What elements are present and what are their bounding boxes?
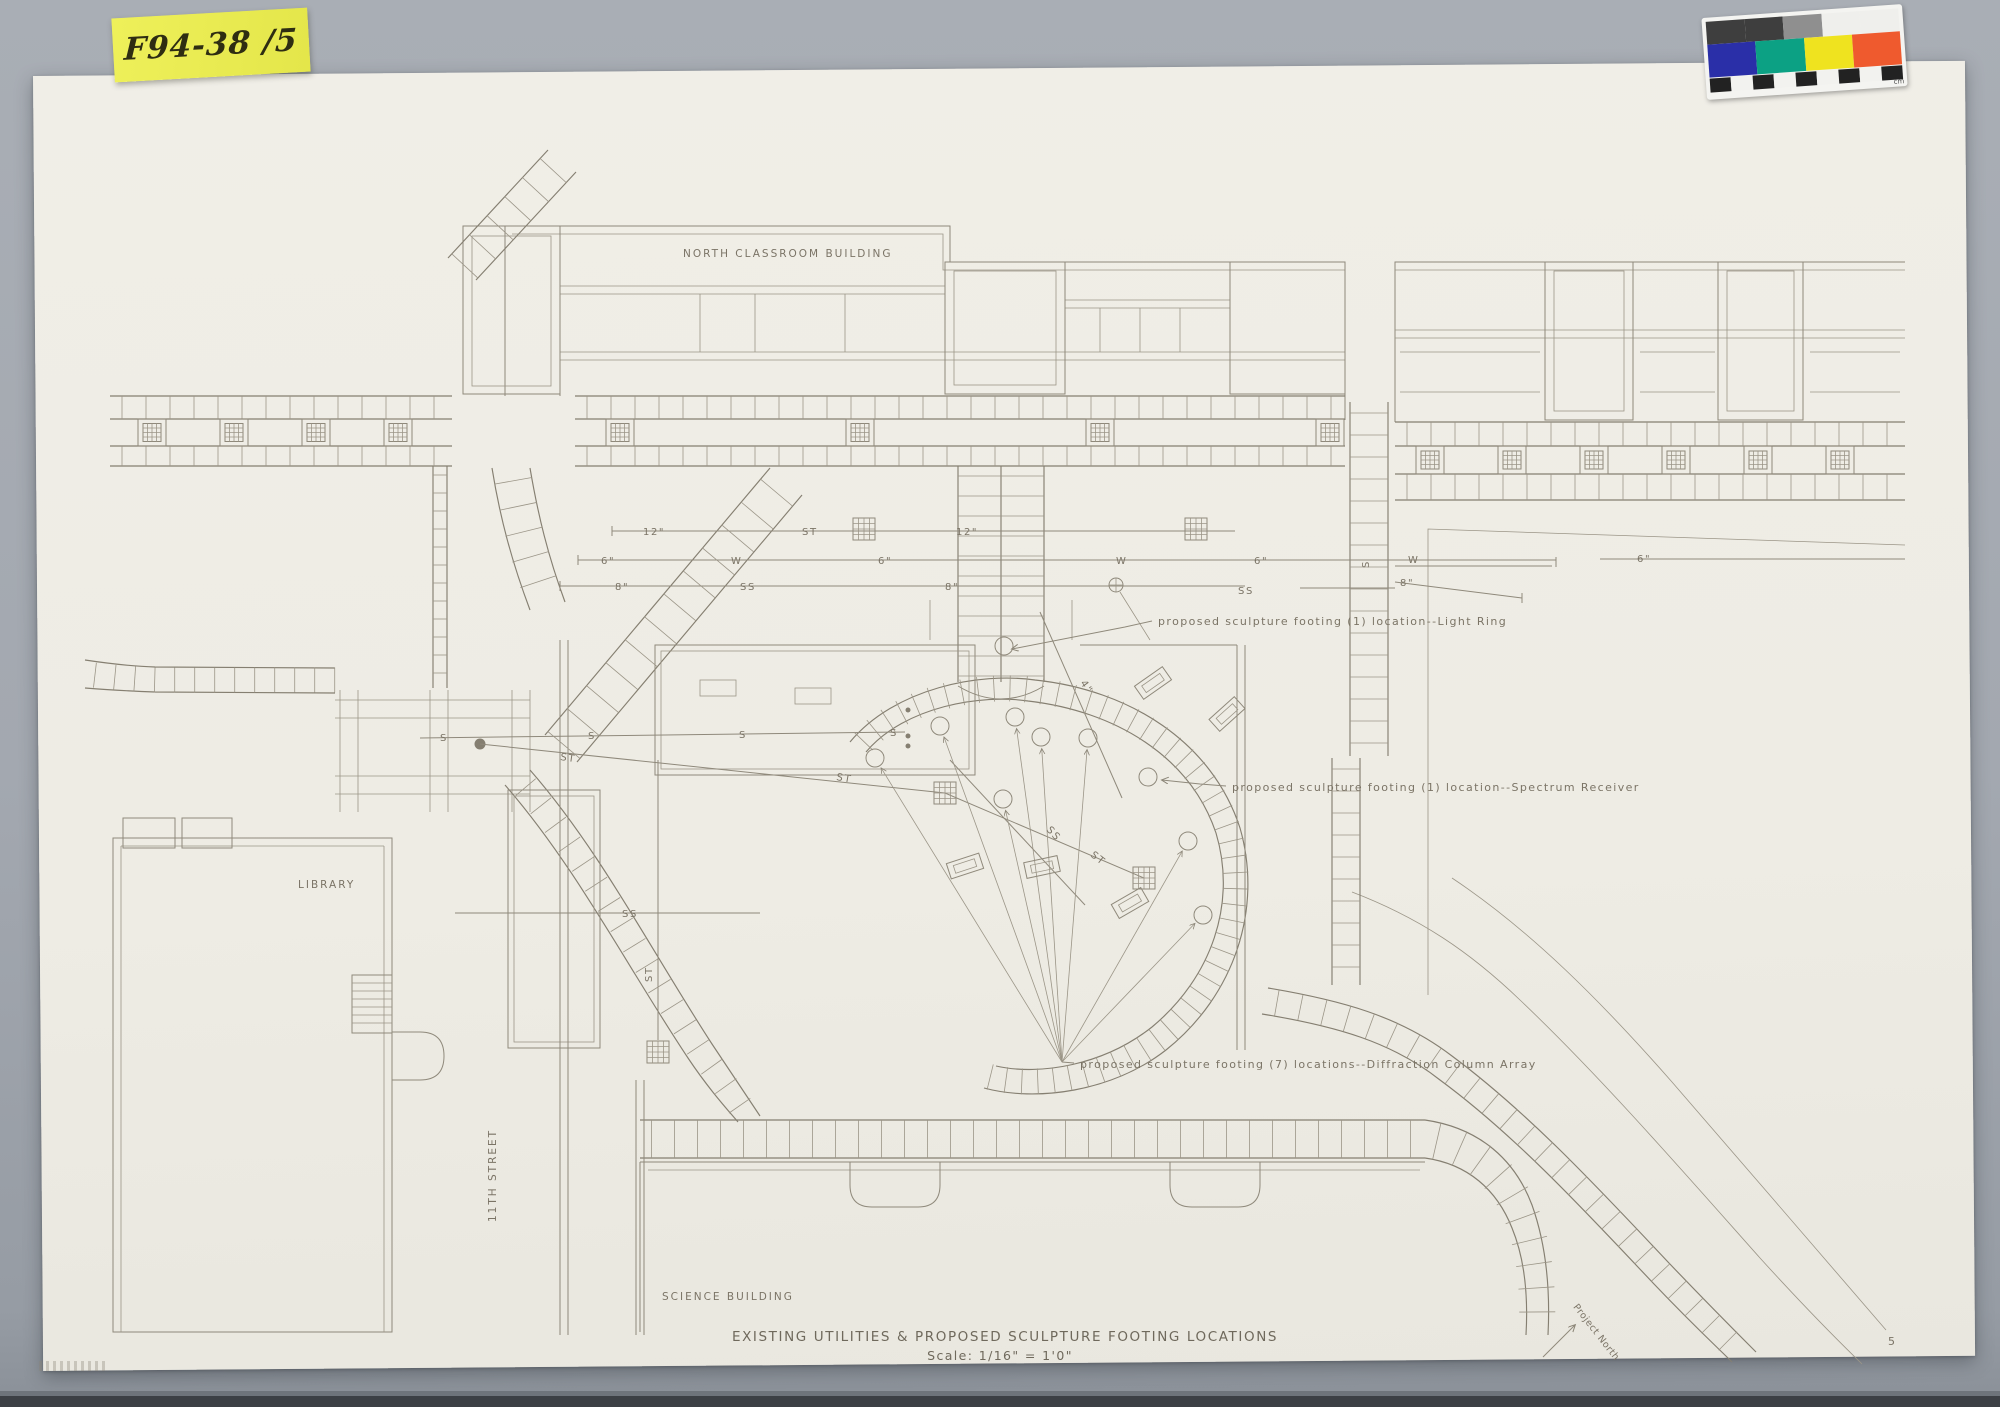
utility-label-8in: 8" xyxy=(1400,578,1414,589)
faint-stamp xyxy=(39,1361,105,1371)
color-calibration-card: cm xyxy=(1701,4,1907,100)
label-north-classroom-building: NORTH CLASSROOM BUILDING xyxy=(683,248,892,260)
color-swatch xyxy=(1731,76,1753,91)
utility-label-s: S xyxy=(739,730,747,741)
footing-circle xyxy=(994,790,1012,808)
bench-icon xyxy=(1024,856,1061,879)
footing-circle xyxy=(1139,768,1157,786)
utility-label-s: S xyxy=(440,733,448,744)
bench-icon xyxy=(1209,697,1245,732)
footing-circle xyxy=(1032,728,1050,746)
color-swatch xyxy=(1707,41,1757,77)
utility-label-6in: 6" xyxy=(601,556,615,567)
footing-circle xyxy=(931,717,949,735)
utility-label-w: W xyxy=(1116,556,1128,567)
utility-label-12in: 12" xyxy=(643,527,665,538)
utility-label-6in: 6" xyxy=(878,556,892,567)
utility-label-6in: 6" xyxy=(1637,554,1651,565)
color-swatch xyxy=(1744,16,1784,42)
science-building-linework xyxy=(640,1162,1425,1332)
utility-label-ss: SS xyxy=(740,582,756,593)
bench-icon xyxy=(1111,888,1148,919)
footing-circle xyxy=(1079,729,1097,747)
plaza-buildings-linework xyxy=(508,645,1245,1050)
catalog-sticky-note: F94-38 /5 xyxy=(111,8,310,83)
color-swatch xyxy=(1752,74,1774,89)
utility-label-ss: SS xyxy=(1238,586,1254,597)
color-swatch xyxy=(1804,35,1854,71)
footing-circle xyxy=(1006,708,1024,726)
site-plan-drawing: NORTH CLASSROOM BUILDING LIBRARY 11TH ST… xyxy=(0,0,2000,1407)
label-11th-street: 11TH STREET xyxy=(487,1129,499,1222)
utility-label-st: ST xyxy=(560,752,577,765)
annotation-diffraction-array: proposed sculpture footing (7) locations… xyxy=(1080,1058,1537,1071)
utility-label-s: S xyxy=(890,728,898,739)
color-swatch xyxy=(1774,73,1796,88)
catalog-number: F94-38 /5 xyxy=(123,22,298,68)
photo-of-drawing: NORTH CLASSROOM BUILDING LIBRARY 11TH ST… xyxy=(0,0,2000,1407)
annotation-light-ring: proposed sculpture footing (1) location-… xyxy=(1158,615,1507,628)
sheet-number: 5 xyxy=(1888,1335,1896,1348)
utility-label-st: ST xyxy=(644,966,655,982)
utility-label-6in: 6" xyxy=(1254,556,1268,567)
utility-label-ss: SS xyxy=(622,909,638,920)
bench-icon xyxy=(1134,667,1171,700)
utility-label-s: S xyxy=(588,731,596,742)
color-swatch xyxy=(1821,11,1861,37)
color-swatch xyxy=(1852,31,1902,67)
color-swatch xyxy=(1706,19,1746,45)
utility-label-st: ST xyxy=(802,527,818,538)
label-science-building: SCIENCE BUILDING xyxy=(662,1291,794,1303)
utility-label-8in: 8" xyxy=(945,582,959,593)
utility-label-w: W xyxy=(731,556,743,567)
annotation-spectrum-receiver: proposed sculpture footing (1) location-… xyxy=(1232,781,1640,794)
color-swatch xyxy=(1817,70,1839,85)
utility-label-st: ST xyxy=(835,772,852,786)
generated-symbols xyxy=(93,158,1887,1350)
utility-lines xyxy=(420,526,1905,1040)
sheet-title: EXISTING UTILITIES & PROPOSED SCULPTURE … xyxy=(732,1329,1278,1345)
utility-label-w: W xyxy=(1408,555,1420,566)
north-classroom-building-linework xyxy=(463,226,1905,422)
utility-label-8in: 8" xyxy=(615,582,629,593)
color-swatch xyxy=(1859,67,1881,82)
color-swatch xyxy=(1783,14,1823,40)
utility-label-12in: 12" xyxy=(956,527,978,538)
utility-label-4in: 4" xyxy=(1078,678,1095,696)
color-swatch xyxy=(1860,8,1900,34)
utility-label-st: ST xyxy=(1088,850,1107,868)
color-swatch xyxy=(1838,68,1860,83)
color-swatch xyxy=(1710,77,1732,92)
label-library: LIBRARY xyxy=(298,879,355,891)
utility-label-s: S xyxy=(1361,560,1372,568)
walkway-linework xyxy=(85,150,1905,1364)
table-edge xyxy=(0,1396,2000,1407)
color-swatch xyxy=(1755,38,1805,74)
annotation-leaders xyxy=(1012,621,1226,1063)
north-arrow-label: Project North xyxy=(1571,1302,1622,1363)
bench-icon xyxy=(946,853,983,879)
footing-circle xyxy=(995,637,1013,655)
north-arrow-icon: Project North xyxy=(1543,1302,1621,1363)
color-swatch xyxy=(1795,71,1817,86)
cm-label: cm xyxy=(1893,78,1904,86)
footing-circle xyxy=(866,749,884,767)
footing-circle xyxy=(1194,906,1212,924)
sheet-scale: Scale: 1/16" = 1'0" xyxy=(927,1348,1073,1363)
footing-circle xyxy=(1179,832,1197,850)
library-linework xyxy=(113,640,644,1335)
